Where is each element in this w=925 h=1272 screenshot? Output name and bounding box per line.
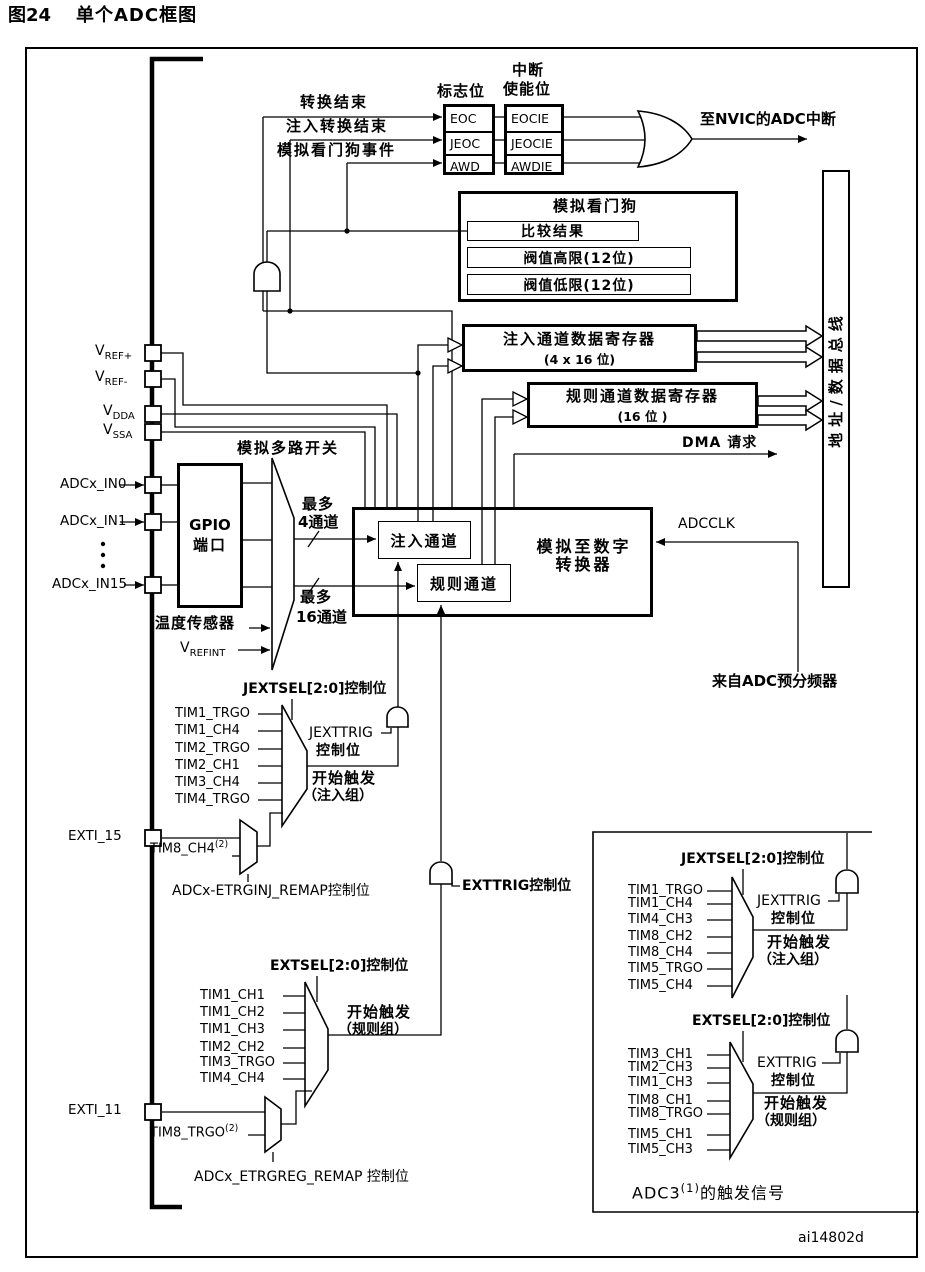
label-sr2: （规则组） — [338, 1022, 408, 1038]
label-jexttrig2: 控制位 — [316, 743, 361, 759]
regular-register-size: (16 位 ) — [617, 406, 667, 425]
label-max4-2: 4通道 — [298, 514, 338, 531]
label-it6: TIM5_TRGO — [628, 962, 703, 977]
label-i-jexttrig2: 控制位 — [771, 911, 816, 927]
label-isi2: （注入组） — [758, 952, 828, 968]
high-threshold-box: 阀值高限(12位) — [467, 247, 691, 268]
high-threshold-label: 阀值高限(12位) — [523, 248, 634, 268]
gpio-line2: 端口 — [193, 534, 227, 555]
label-exti15: EXTI_15 — [68, 829, 122, 845]
label-ir2: TIM2_CH3 — [628, 1061, 693, 1076]
label-vref-p: VREF+ — [95, 343, 132, 362]
converter-label: 模拟至数字 转换器 — [520, 531, 648, 581]
label-it7: TIM5_CH4 — [628, 979, 693, 994]
label-max16-2: 16通道 — [296, 609, 347, 626]
label-it4: TIM8_CH2 — [628, 930, 693, 945]
label-isr1: 开始触发 — [764, 1095, 828, 1112]
label-i-exttrig2: 控制位 — [771, 1073, 816, 1089]
label-sr1: 开始触发 — [347, 1004, 411, 1021]
figure-caption: 单个ADC框图 — [76, 6, 197, 27]
flag-jeoc: JEOC — [446, 131, 492, 155]
regular-channels-box: 规则通道 — [417, 564, 511, 602]
regular-channels-label: 规则通道 — [430, 573, 498, 594]
label-si1: 开始触发 — [312, 770, 376, 787]
label-ir6: TIM5_CH1 — [628, 1128, 693, 1143]
injected-data-register-box: 注入通道数据寄存器 (4 x 16 位) — [462, 324, 697, 372]
label-tim8ch4: TIM8_CH4(2) — [150, 840, 228, 857]
label-it5: TIM8_CH4 — [628, 946, 693, 961]
label-r3: TIM1_CH3 — [200, 1023, 265, 1038]
label-extsel-main: EXTSEL[2:0]控制位 — [270, 958, 408, 974]
label-isi1: 开始触发 — [767, 934, 831, 951]
label-r6: TIM4_CH4 — [200, 1072, 265, 1087]
label-vdda: VDDA — [103, 403, 135, 422]
label-in1: ADCx_IN1 — [60, 514, 126, 530]
analog-watchdog-title: 模拟看门狗 — [553, 198, 638, 215]
label-mux-label: 模拟多路开关 — [237, 440, 339, 457]
injected-register-size: (4 x 16 位) — [544, 349, 615, 368]
label-it3: TIM4_CH3 — [628, 913, 693, 928]
label-nvic: 至NVIC的ADC中断 — [700, 111, 836, 128]
label-max4-1: 最多 — [302, 496, 334, 513]
interrupt-enable-box: EOCIE JEOCIE AWDIE — [504, 104, 564, 175]
regular-data-register-box: 规则通道数据寄存器 (16 位 ) — [527, 382, 758, 428]
compare-result-label: 比较结果 — [521, 221, 585, 241]
label-t4: TIM2_CH1 — [175, 759, 240, 774]
label-r2: TIM1_CH2 — [200, 1006, 265, 1021]
label-en-title1: 中断 — [512, 62, 544, 79]
label-max16-1: 最多 — [300, 589, 332, 606]
enable-eocie: EOCIE — [507, 107, 561, 131]
flag-eoc: EOC — [446, 107, 492, 131]
injected-channels-label: 注入通道 — [390, 530, 458, 551]
label-isr2: （规则组） — [756, 1113, 826, 1129]
label-tim8trgo: TIM8_TRGO(2) — [150, 1124, 238, 1141]
label-jexttrig1: JEXTTRIG — [309, 725, 373, 741]
label-it2: TIM1_CH4 — [628, 897, 693, 912]
label-prescaler: 来自ADC预分频器 — [712, 673, 837, 690]
label-ev-jeoc: 注入转换结束 — [286, 118, 388, 135]
label-r1: TIM1_CH1 — [200, 989, 265, 1004]
low-threshold-box: 阀值低限(12位) — [467, 274, 691, 295]
label-vref-m: VREF- — [95, 369, 127, 388]
regular-register-label: 规则通道数据寄存器 — [566, 385, 719, 406]
label-t5: TIM3_CH4 — [175, 776, 240, 791]
enable-awdie: AWDIE — [507, 154, 561, 178]
injected-channels-box: 注入通道 — [378, 521, 471, 559]
gpio-line1: GPIO — [189, 516, 231, 534]
label-ir3: TIM1_CH3 — [628, 1076, 693, 1091]
label-t3: TIM2_TRGO — [175, 742, 250, 757]
gpio-port-box: GPIO 端口 — [177, 463, 243, 608]
label-t6: TIM4_TRGO — [175, 793, 250, 808]
label-vssa: VSSA — [103, 422, 132, 441]
label-dma: DMA 请求 — [682, 435, 757, 451]
label-temp: 温度传感器 — [155, 615, 235, 632]
label-in0: ADCx_IN0 — [60, 477, 126, 493]
flag-bits-box: EOC JEOC AWD — [443, 104, 495, 175]
label-t1: TIM1_TRGO — [175, 707, 250, 722]
label-exti11: EXTI_11 — [68, 1103, 122, 1119]
label-i-exttrig1: EXTTRIG — [757, 1055, 817, 1071]
converter-line2: 转换器 — [555, 556, 612, 574]
converter-line1: 模拟至数字 — [536, 538, 631, 556]
label-remap-inj: ADCx-ETRGINJ_REMAP控制位 — [172, 883, 370, 899]
label-en-title2: 使能位 — [503, 81, 551, 98]
label-i-jextsel: JEXTSEL[2:0]控制位 — [681, 851, 825, 867]
flag-awd: AWD — [446, 154, 492, 178]
label-adc3: ADC3(1)的触发信号 — [632, 1182, 785, 1203]
adc-block-diagram-figure: 图24 单个ADC框图 — [0, 0, 925, 1272]
label-ir7: TIM5_CH3 — [628, 1143, 693, 1158]
label-t2: TIM1_CH4 — [175, 724, 240, 739]
label-adcclk: ADCCLK — [678, 516, 735, 532]
enable-jeocie: JEOCIE — [507, 131, 561, 155]
address-data-bus-label: 地址/数据总线 — [825, 170, 847, 588]
label-ev-awd: 模拟看门狗事件 — [277, 142, 396, 159]
low-threshold-label: 阀值低限(12位) — [523, 275, 634, 295]
label-ev-eoc: 转换结束 — [300, 94, 368, 111]
label-r5: TIM3_TRGO — [200, 1056, 275, 1071]
compare-result-box: 比较结果 — [467, 221, 639, 241]
label-i-jexttrig1: JEXTTRIG — [757, 893, 821, 909]
label-vrefint: VREFINT — [180, 640, 225, 659]
label-i-extsel: EXTSEL[2:0]控制位 — [692, 1013, 830, 1029]
figure-number: 图24 — [8, 6, 51, 27]
label-si2: （注入组） — [303, 788, 373, 804]
label-jextsel-main: JEXTSEL[2:0]控制位 — [243, 681, 387, 697]
label-watermark: ai14802d — [798, 1230, 864, 1246]
label-remap-reg: ADCx_ETRGREG_REMAP 控制位 — [194, 1169, 409, 1185]
label-ir5: TIM8_TRGO — [628, 1107, 703, 1122]
label-r4: TIM2_CH2 — [200, 1041, 265, 1056]
label-flags-title: 标志位 — [437, 83, 485, 100]
label-exttrig-main: EXTTRIG控制位 — [462, 878, 571, 894]
label-in15: ADCx_IN15 — [52, 577, 127, 593]
injected-register-label: 注入通道数据寄存器 — [503, 328, 656, 349]
